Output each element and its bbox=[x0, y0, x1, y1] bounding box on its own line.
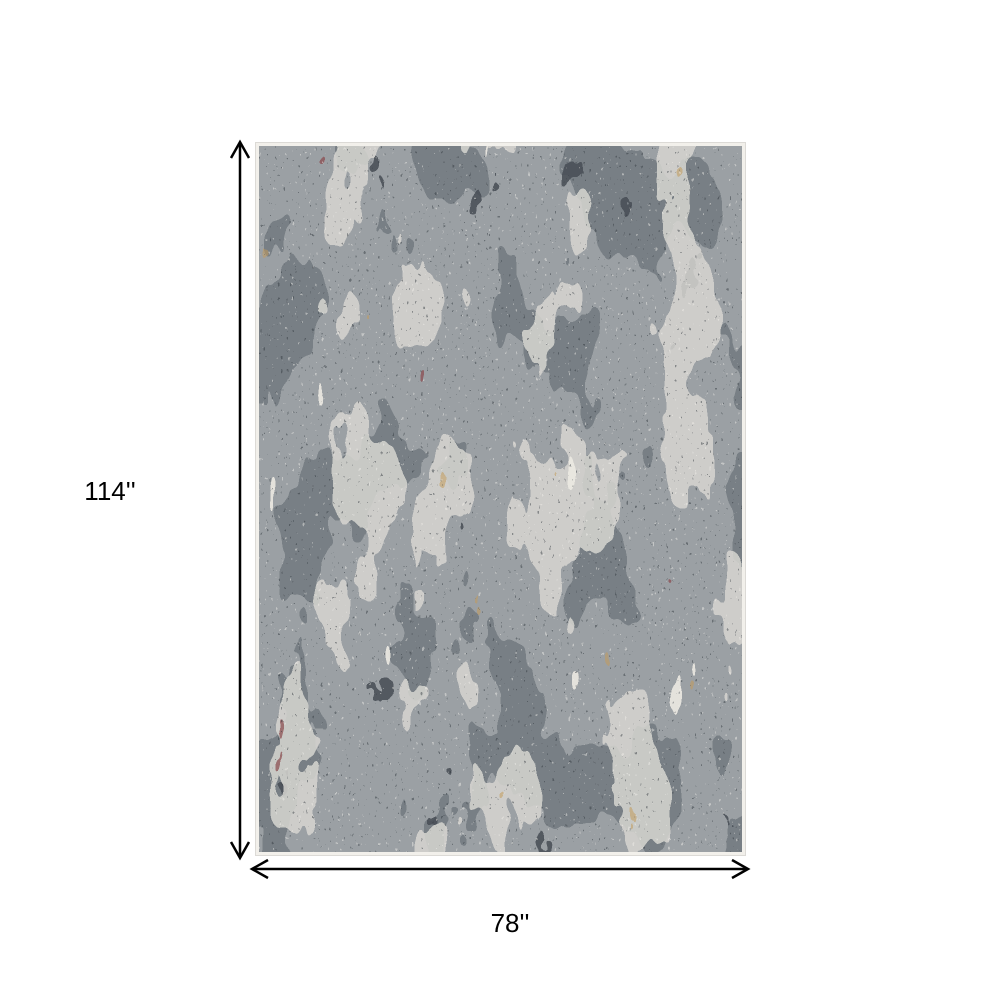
width-dimension-label: 78'' bbox=[445, 909, 575, 939]
height-dimension-arrow bbox=[231, 142, 249, 858]
height-dimension-label: 114'' bbox=[50, 477, 170, 507]
width-dimension-arrow bbox=[252, 860, 748, 878]
arrowhead-right-icon bbox=[732, 860, 748, 878]
product-dimension-diagram: 114'' 78'' bbox=[0, 0, 1000, 1000]
rug-image bbox=[255, 142, 746, 856]
rug-grain-light bbox=[255, 142, 746, 856]
arrowhead-left-icon bbox=[252, 860, 268, 878]
arrowhead-up-icon bbox=[231, 142, 249, 158]
arrowhead-down-icon bbox=[231, 842, 249, 858]
